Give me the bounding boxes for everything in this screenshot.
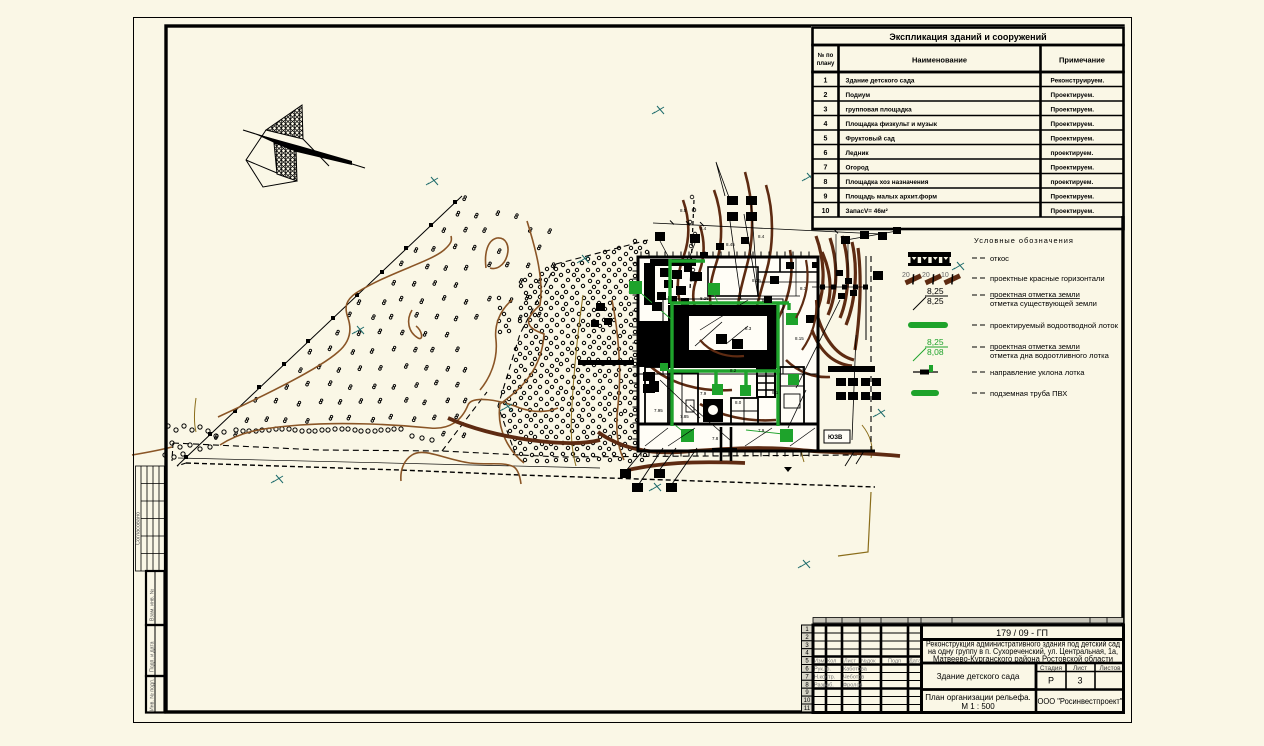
svg-text:ЮЗВ: ЮЗВ (828, 435, 843, 441)
svg-text:10: 10 (804, 698, 811, 704)
svg-text:8,25: 8,25 (927, 337, 944, 347)
svg-text:Разраб.: Разраб. (814, 683, 834, 689)
svg-text:проектируем.: проектируем. (1051, 179, 1094, 186)
svg-text:откос: откос (990, 254, 1009, 263)
svg-text:8.1: 8.1 (688, 358, 695, 363)
svg-text:8,08: 8,08 (927, 347, 944, 357)
svg-text:8.4: 8.4 (758, 234, 765, 239)
svg-text:подземная труба ПВХ: подземная труба ПВХ (990, 389, 1067, 398)
svg-text:7: 7 (824, 165, 828, 172)
svg-text:Условные обозначения: Условные обозначения (974, 236, 1074, 245)
svg-text:проектные красные горизонтали: проектные красные горизонтали (990, 274, 1105, 283)
svg-text:№док: №док (861, 659, 876, 665)
svg-text:3: 3 (1077, 676, 1082, 686)
svg-text:4: 4 (824, 121, 828, 128)
svg-text:Площадка физкульт и музык: Площадка физкульт и музык (846, 121, 938, 128)
svg-text:7.9: 7.9 (700, 391, 707, 396)
svg-text:1: 1 (824, 78, 828, 85)
svg-text:Р: Р (1048, 676, 1054, 686)
svg-text:5: 5 (824, 136, 828, 143)
svg-text:Проектируем.: Проектируем. (1051, 107, 1095, 114)
svg-text:8.0: 8.0 (735, 400, 742, 405)
svg-text:Лист: Лист (844, 659, 856, 665)
svg-text:20: 20 (902, 272, 910, 279)
svg-text:179 / 09 - ГП: 179 / 09 - ГП (996, 628, 1048, 638)
svg-text:Изм: Изм (814, 659, 824, 665)
svg-text:Наименование: Наименование (912, 56, 967, 65)
svg-text:Н.контр.: Н.контр. (814, 675, 836, 681)
svg-text:Взам. инв. №: Взам. инв. № (150, 588, 156, 621)
svg-text:Здание детского сада: Здание детского сада (937, 672, 1020, 681)
svg-text:проектная отметка земли: проектная отметка земли (990, 342, 1080, 351)
svg-text:групповая площадка: групповая площадка (846, 107, 913, 114)
svg-text:8.15: 8.15 (795, 336, 804, 341)
svg-text:отметка существующей земли: отметка существующей земли (990, 299, 1097, 308)
svg-text:7.9: 7.9 (758, 428, 765, 433)
svg-text:Проектируем.: Проектируем. (1051, 121, 1095, 128)
svg-text:8,25: 8,25 (927, 296, 944, 306)
svg-text:проектируемый водоотводной лот: проектируемый водоотводной лоток (990, 321, 1119, 330)
svg-text:отметка дна водоотливного лотк: отметка дна водоотливного лотка (990, 351, 1110, 360)
svg-text:8.2: 8.2 (730, 368, 737, 373)
svg-text:3: 3 (824, 107, 828, 114)
svg-text:20: 20 (922, 272, 930, 279)
svg-text:Здание детского сада: Здание детского сада (846, 78, 915, 85)
svg-text:Проектируем.: Проектируем. (1051, 136, 1095, 143)
svg-text:Экспликация зданий и сооружени: Экспликация зданий и сооружений (889, 32, 1046, 42)
svg-text:10: 10 (941, 272, 949, 279)
svg-text:Рук.гр.: Рук.гр. (814, 667, 831, 673)
svg-text:8.3: 8.3 (745, 326, 752, 331)
svg-text:проектируем.: проектируем. (1051, 150, 1094, 157)
svg-text:Реконструируем.: Реконструируем. (1051, 78, 1105, 85)
svg-text:7.8: 7.8 (712, 436, 719, 441)
svg-text:Площадь малых архит.форм: Площадь малых архит.форм (846, 194, 938, 201)
svg-text:8.1: 8.1 (772, 390, 779, 395)
svg-text:8.0: 8.0 (798, 366, 805, 371)
svg-text:8.5: 8.5 (680, 208, 687, 213)
svg-text:8.4: 8.4 (700, 226, 707, 231)
svg-text:План организации рельефа.: План организации рельефа. (925, 693, 1031, 702)
svg-text:8.25: 8.25 (755, 356, 764, 361)
svg-text:Подп. и дата: Подп. и дата (150, 641, 156, 672)
svg-text:Площадка хоз назначения: Площадка хоз назначения (846, 179, 929, 186)
svg-text:Подп: Подп (888, 659, 901, 665)
svg-text:Проектируем.: Проектируем. (1051, 208, 1095, 215)
svg-text:8: 8 (824, 179, 828, 186)
svg-text:Дата: Дата (909, 659, 922, 665)
svg-text:ООО "Росинвестпроект": ООО "Росинвестпроект" (1038, 697, 1123, 706)
svg-text:Согласовано: Согласовано (136, 512, 142, 545)
svg-text:Кол: Кол (827, 659, 836, 665)
svg-text:7.85: 7.85 (680, 414, 689, 419)
svg-text:Проектируем.: Проектируем. (1051, 194, 1095, 201)
svg-text:11: 11 (804, 706, 811, 712)
svg-text:М 1 : 500: М 1 : 500 (961, 702, 995, 711)
svg-text:Инв. № подл.: Инв. № подл. (150, 679, 156, 711)
svg-text:8.2: 8.2 (660, 336, 667, 341)
svg-text:плану: плану (817, 61, 835, 67)
svg-text:Фролов: Фролов (843, 683, 863, 689)
svg-text:Каботова: Каботова (843, 667, 868, 673)
svg-text:Фруктовый сад: Фруктовый сад (846, 135, 895, 143)
svg-text:8,25: 8,25 (927, 286, 944, 296)
svg-text:ЗапасV= 46м²: ЗапасV= 46м² (846, 208, 888, 215)
svg-text:Подиум: Подиум (846, 92, 871, 99)
svg-text:9: 9 (824, 194, 828, 201)
svg-text:2: 2 (824, 92, 828, 99)
svg-text:10: 10 (822, 208, 830, 215)
svg-text:8.45: 8.45 (726, 242, 735, 247)
svg-text:8.25: 8.25 (700, 296, 709, 301)
svg-text:№ по: № по (818, 52, 834, 59)
svg-text:Чеботов: Чеботов (843, 675, 864, 681)
svg-text:Ледник: Ледник (846, 150, 870, 157)
svg-text:проектная отметка земли: проектная отметка земли (990, 290, 1080, 299)
svg-text:Огород: Огород (846, 165, 869, 172)
svg-text:Примечание: Примечание (1059, 56, 1105, 65)
svg-text:Проектируем.: Проектируем. (1051, 92, 1095, 99)
svg-text:7.95: 7.95 (654, 408, 663, 413)
svg-text:6: 6 (824, 150, 828, 157)
svg-text:направление уклона лотка: направление уклона лотка (990, 368, 1085, 377)
svg-text:Проектируем.: Проектируем. (1051, 165, 1095, 172)
